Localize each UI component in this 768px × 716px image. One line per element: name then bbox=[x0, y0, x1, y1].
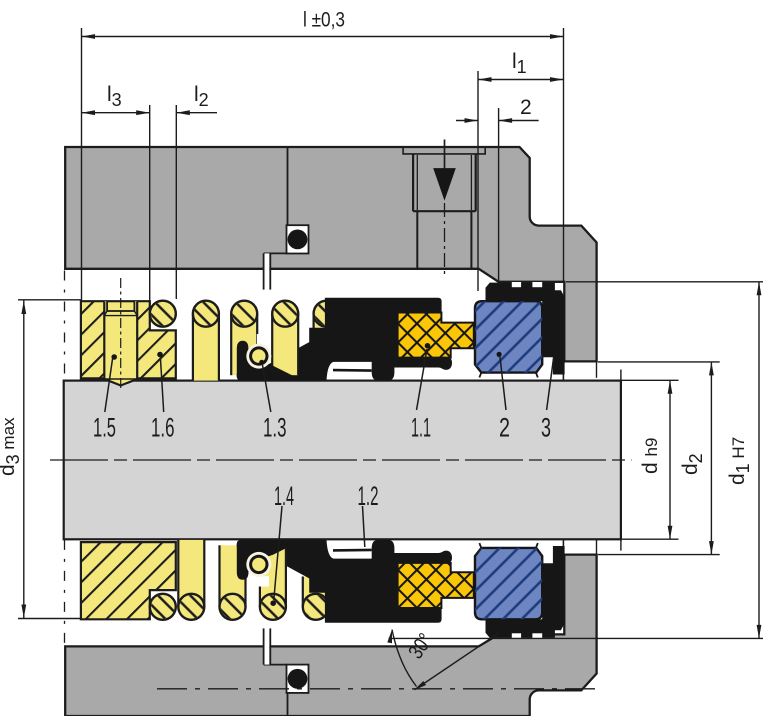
svg-text:2: 2 bbox=[520, 96, 532, 119]
svg-text:l ±0,3: l ±0,3 bbox=[303, 9, 345, 32]
svg-text:1.1: 1.1 bbox=[411, 413, 431, 443]
svg-text:1.6: 1.6 bbox=[151, 413, 175, 443]
svg-text:1.3: 1.3 bbox=[263, 413, 287, 443]
svg-text:2: 2 bbox=[499, 413, 510, 443]
svg-text:1.4: 1.4 bbox=[274, 481, 294, 511]
svg-text:1.5: 1.5 bbox=[93, 413, 116, 443]
svg-text:1.2: 1.2 bbox=[358, 481, 379, 511]
svg-text:3: 3 bbox=[541, 413, 551, 443]
svg-text:d h9: d h9 bbox=[639, 438, 662, 474]
